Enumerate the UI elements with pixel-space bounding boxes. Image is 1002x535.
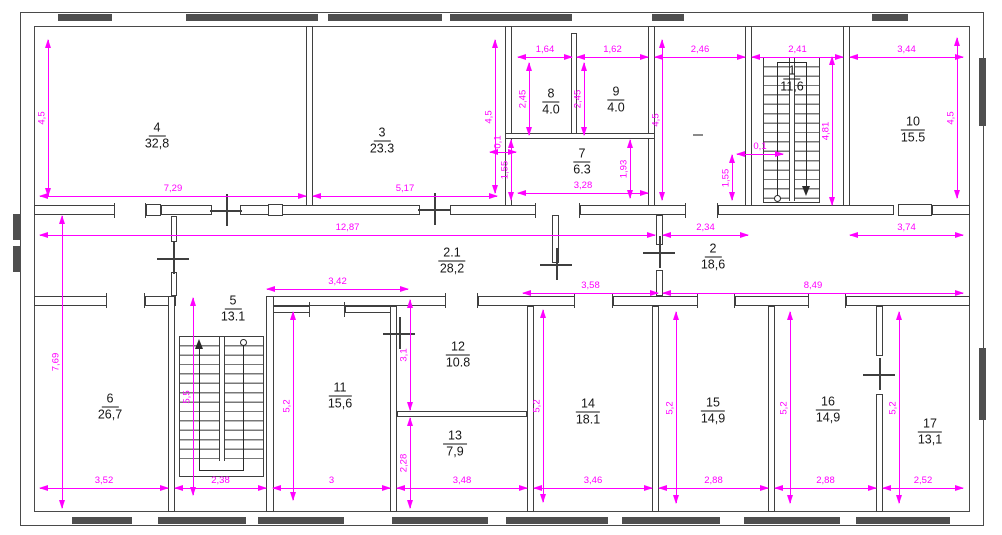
room-label-13: 137,9 bbox=[443, 429, 467, 460]
room-label-14: 1418.1 bbox=[576, 397, 600, 428]
room-label-5: 513.1 bbox=[221, 294, 245, 325]
room-label-1: 111,6 bbox=[780, 64, 803, 95]
dimension-room17-height: 5,2 bbox=[899, 312, 900, 503]
door-mark bbox=[210, 194, 242, 226]
wall bbox=[34, 296, 107, 306]
wall-segment bbox=[13, 214, 21, 240]
wall bbox=[846, 296, 970, 306]
wall-segment bbox=[158, 517, 246, 524]
dimension-room4-width: 7,29 bbox=[40, 196, 306, 197]
dimension-corridor2-left: 3,58 bbox=[523, 293, 658, 294]
door-mark bbox=[643, 236, 675, 268]
room-label-6: 626,7 bbox=[98, 392, 122, 423]
wall bbox=[478, 296, 575, 306]
door-jamb-tick bbox=[808, 293, 809, 308]
wall bbox=[161, 205, 212, 215]
stair-down-arrow-icon bbox=[802, 186, 810, 196]
room-number: 1 bbox=[784, 64, 801, 80]
stair-walk-start bbox=[240, 339, 247, 346]
room-area: 18.1 bbox=[576, 413, 600, 428]
dimension-room6-height: 7,69 bbox=[62, 216, 63, 508]
wall bbox=[571, 33, 577, 136]
dimension-room3-height: 4,5 bbox=[495, 40, 496, 193]
room-number: 17 bbox=[918, 417, 942, 433]
room-area: 6.3 bbox=[573, 163, 590, 178]
wall-segment bbox=[258, 517, 344, 524]
room-number: 15 bbox=[701, 396, 725, 412]
dimension-room1-height: 4,81 bbox=[832, 57, 833, 205]
dimension-room13-bottom: 3,48 bbox=[397, 488, 527, 489]
door-jamb-tick bbox=[106, 293, 107, 308]
wall bbox=[718, 205, 894, 215]
door-jamb-tick bbox=[145, 203, 146, 218]
dimension-room18-right: 1,55 bbox=[732, 155, 733, 200]
wall-segment bbox=[622, 517, 720, 524]
wall bbox=[580, 205, 686, 215]
wall bbox=[266, 296, 274, 512]
stair-walkline bbox=[199, 470, 244, 471]
wall-segment bbox=[328, 14, 442, 21]
wall bbox=[171, 216, 177, 242]
dimension-corridor2-top: 2,34 bbox=[663, 235, 748, 236]
room-area: 15.5 bbox=[901, 131, 925, 146]
wall-segment bbox=[392, 517, 488, 524]
wall bbox=[613, 296, 698, 306]
room-number: 4 bbox=[149, 121, 166, 137]
dimension-room11-height: 5,2 bbox=[293, 312, 294, 500]
room-label-16: 1614,9 bbox=[816, 395, 840, 426]
dimension-room15-height: 5,2 bbox=[676, 312, 677, 503]
door-mark bbox=[418, 193, 450, 225]
door-jamb-tick bbox=[309, 302, 310, 317]
floor-plan: 7,29 5,17 3,28 1,64 1,62 2,46 2,41 3,44 … bbox=[0, 0, 1002, 535]
room-label-11: 1115,6 bbox=[328, 381, 352, 412]
dimension-room9-height: 2,45 bbox=[584, 63, 585, 135]
wall bbox=[306, 26, 313, 210]
door-jamb-tick bbox=[144, 293, 145, 308]
dimension-room10-bottom: 3,74 bbox=[850, 235, 963, 236]
door-mark bbox=[157, 242, 189, 274]
room-number: 3 bbox=[374, 126, 391, 142]
wall bbox=[876, 306, 883, 356]
window-symbol bbox=[268, 204, 283, 216]
room-area: 4.0 bbox=[607, 101, 624, 116]
dimension-room10-width: 3,44 bbox=[850, 57, 963, 58]
wall-segment bbox=[506, 517, 608, 524]
room-number: 7 bbox=[574, 147, 591, 163]
dimension-room4-height: 4,5 bbox=[48, 40, 49, 196]
dimension-room18-height: 4,5 bbox=[662, 40, 663, 200]
dimension-room5-height: 5,5 bbox=[193, 298, 194, 495]
wall-segment bbox=[872, 14, 908, 21]
wall-segment bbox=[186, 14, 318, 21]
room-number: 13 bbox=[443, 429, 467, 445]
dimension-room18-notch: 0,1 bbox=[737, 154, 783, 155]
dimension-room14-height: 5,2 bbox=[543, 310, 544, 502]
wall bbox=[168, 296, 175, 512]
dimension-room12-height: 3,1 bbox=[410, 300, 411, 410]
room-area: 13,1 bbox=[918, 433, 942, 448]
dimension-room11-top: 3,42 bbox=[267, 289, 408, 290]
room-label-10: 1015.5 bbox=[901, 115, 925, 146]
wall-segment bbox=[450, 14, 572, 21]
room-number: 2 bbox=[705, 242, 722, 258]
wall-segment bbox=[744, 517, 840, 524]
stair-walkline bbox=[199, 347, 200, 471]
dimension-room7-height: 1,93 bbox=[630, 140, 631, 198]
dimension-corridor2-right: 8,49 bbox=[663, 293, 963, 294]
wall bbox=[735, 296, 809, 306]
wall bbox=[450, 205, 536, 215]
dimension-room11-bottom: 3 bbox=[273, 488, 390, 489]
wall bbox=[652, 306, 659, 512]
room-number: 14 bbox=[576, 397, 600, 413]
dimension-room6-bottom: 3,52 bbox=[40, 488, 168, 489]
room-label-4: 432,8 bbox=[145, 121, 169, 152]
wall bbox=[768, 306, 775, 512]
dimension-room18-width: 2,46 bbox=[655, 57, 745, 58]
stair-rail bbox=[219, 337, 225, 461]
dimension-room3-width: 5,17 bbox=[313, 196, 497, 197]
door-jamb-tick bbox=[685, 203, 686, 218]
stair-walkline bbox=[806, 62, 807, 188]
room-area: 7,9 bbox=[443, 445, 467, 460]
room-area: 15,6 bbox=[328, 397, 352, 412]
door-jamb-tick bbox=[734, 293, 735, 308]
dimension-room5-bottom: 2,38 bbox=[175, 488, 266, 489]
room-number: 9 bbox=[608, 85, 625, 101]
wall bbox=[397, 411, 527, 417]
wall-segment bbox=[58, 14, 112, 21]
wall-segment bbox=[979, 58, 986, 126]
stair-walkline bbox=[243, 343, 244, 471]
room-number: 11 bbox=[329, 381, 352, 397]
room-area: 10.8 bbox=[446, 356, 470, 371]
dimension-room10-height: 4,5 bbox=[957, 38, 958, 198]
room-number: 2.1 bbox=[438, 246, 465, 262]
wall-segment bbox=[652, 14, 684, 21]
door-jamb-tick bbox=[717, 203, 718, 218]
room-label-18 bbox=[693, 125, 703, 140]
dimension-room3-notch bbox=[490, 152, 516, 153]
room-number bbox=[693, 135, 703, 136]
dimension-corridor-width: 12,87 bbox=[40, 235, 655, 236]
room-area: 14,9 bbox=[701, 412, 725, 427]
door-jamb-tick bbox=[477, 293, 478, 308]
room-number: 10 bbox=[901, 115, 925, 131]
wall bbox=[876, 394, 883, 512]
wall-segment bbox=[856, 517, 950, 524]
door-jamb-tick bbox=[535, 203, 536, 218]
stair-walkline bbox=[777, 62, 778, 198]
door-jamb-tick bbox=[845, 293, 846, 308]
wall bbox=[240, 205, 420, 215]
wall-segment bbox=[13, 246, 21, 272]
room-number: 8 bbox=[543, 87, 560, 103]
stair-walk-start bbox=[774, 195, 781, 202]
staircase-5 bbox=[179, 336, 264, 477]
room-number: 12 bbox=[446, 340, 470, 356]
room-label-15: 1514,9 bbox=[701, 396, 725, 427]
door-jamb-tick bbox=[344, 302, 345, 317]
room-number: 6 bbox=[102, 392, 119, 408]
dimension-room13-height: 2,28 bbox=[410, 418, 411, 508]
door-jamb-tick bbox=[114, 203, 115, 218]
room-area: 32,8 bbox=[145, 137, 169, 152]
window-symbol bbox=[146, 204, 161, 216]
wall bbox=[171, 272, 177, 296]
room-area: 14,9 bbox=[816, 411, 840, 426]
room-area: 23.3 bbox=[370, 142, 394, 157]
door-jamb-tick bbox=[612, 293, 613, 308]
wall bbox=[932, 205, 970, 215]
room-label-12: 1210.8 bbox=[446, 340, 470, 371]
wall bbox=[34, 205, 115, 215]
room-number: 16 bbox=[816, 395, 840, 411]
door-jamb-tick bbox=[445, 293, 446, 308]
stair-up-arrow-icon bbox=[195, 339, 203, 349]
room-number: 5 bbox=[225, 294, 242, 310]
wall-segment bbox=[979, 348, 986, 420]
door-jamb-tick bbox=[574, 293, 575, 308]
room-label-17: 1713,1 bbox=[918, 417, 942, 448]
room-label-8: 84.0 bbox=[542, 87, 559, 118]
room-area: 26,7 bbox=[98, 408, 122, 423]
room-area: 4.0 bbox=[542, 103, 559, 118]
room-label-3: 323.3 bbox=[370, 126, 394, 157]
door-jamb-tick bbox=[697, 293, 698, 308]
door-mark bbox=[540, 248, 572, 280]
dimension-room8-width: 1,64 bbox=[518, 57, 572, 58]
dimension-room16-height: 5,2 bbox=[790, 312, 791, 503]
dimension-room17-bottom: 2,52 bbox=[883, 488, 963, 489]
room-area: 28,2 bbox=[438, 262, 465, 277]
dimension-room9-width: 1,62 bbox=[577, 57, 648, 58]
door-mark bbox=[863, 358, 895, 390]
wall bbox=[266, 296, 446, 306]
room-area: 11,6 bbox=[780, 80, 803, 95]
room-area: 13.1 bbox=[221, 310, 245, 325]
dimension-room7-left: 1,55 bbox=[511, 140, 512, 200]
wall-segment bbox=[72, 517, 132, 524]
room-label-9: 94.0 bbox=[607, 85, 624, 116]
room-area: 18,6 bbox=[701, 258, 725, 273]
dimension-room8-height: 2,45 bbox=[529, 63, 530, 135]
door-jamb-tick bbox=[579, 203, 580, 218]
room-label-2-1: 2.128,2 bbox=[438, 246, 465, 277]
room-label-2: 218,6 bbox=[701, 242, 725, 273]
room-label-7: 76.3 bbox=[573, 147, 590, 178]
door-threshold bbox=[898, 204, 932, 216]
dimension-room14-bottom: 3,46 bbox=[534, 488, 652, 489]
